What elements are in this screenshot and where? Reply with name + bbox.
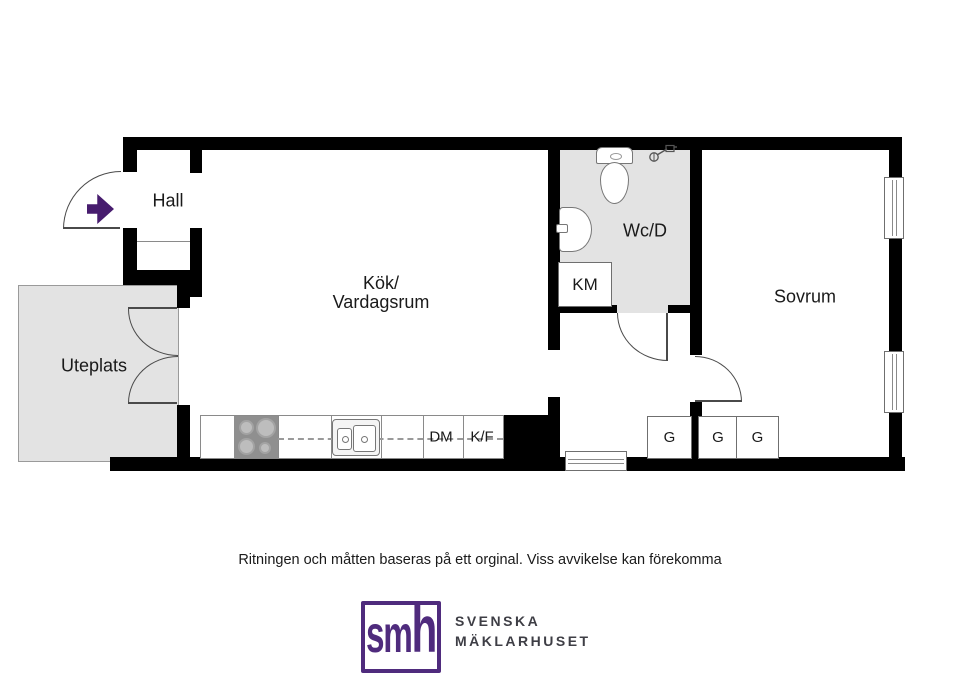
- wardrobe-box: G: [647, 416, 692, 459]
- door-swing-arc: [617, 313, 668, 361]
- smh-logo-sm: sm: [366, 606, 412, 664]
- washing-machine-label: KM: [572, 275, 598, 295]
- wall-kitchen-left-upper: [177, 285, 190, 308]
- room-label-kitchen-line1: Kök/: [333, 274, 430, 293]
- door-leaf: [63, 227, 120, 229]
- door-leaf: [666, 313, 668, 361]
- wall-hall-divider-stub: [190, 137, 202, 173]
- hall-closet-line: [137, 241, 190, 242]
- wall-bathroom-bottom-right: [668, 305, 690, 313]
- kitchen-counter: [200, 415, 504, 459]
- wardrobe-label: G: [712, 429, 724, 446]
- room-label-kitchen: Kök/ Vardagsrum: [333, 274, 430, 312]
- wall-closet-bottom: [123, 270, 202, 285]
- dishwasher-label: DM: [429, 428, 452, 447]
- bathroom-sink-icon: [556, 224, 568, 233]
- washing-machine-box: KM: [558, 262, 612, 307]
- wall-bedroom-left-upper: [690, 137, 702, 355]
- wardrobe-label: G: [752, 429, 764, 446]
- smh-logo-h: h: [412, 592, 437, 666]
- floor-plan-page: G G G KM Hall Kök/ Vardagsrum Uteplats W…: [0, 0, 960, 679]
- wardrobe-label: G: [664, 429, 676, 446]
- window-icon: [884, 351, 904, 413]
- smh-logo-name: SVENSKA MÄKLARHUSET: [455, 611, 591, 651]
- wall-bottom: [110, 457, 905, 471]
- wall-right-segment: [889, 412, 902, 457]
- shower-mixer-icon: [648, 142, 678, 164]
- wall-counter-end: [502, 415, 548, 457]
- wall-top: [123, 137, 902, 150]
- disclaimer-text: Ritningen och måtten baseras på ett orgi…: [0, 552, 960, 568]
- wall-right-segment: [889, 150, 902, 178]
- smh-logo-name-line1: SVENSKA: [455, 611, 591, 631]
- room-label-hall: Hall: [152, 192, 183, 211]
- counter-dash-line: [278, 438, 503, 440]
- window-icon: [884, 177, 904, 239]
- wardrobe-box: G: [698, 416, 738, 459]
- room-label-kitchen-line2: Vardagsrum: [333, 293, 430, 312]
- wall-right-segment: [889, 237, 902, 352]
- door-leaf: [695, 400, 742, 402]
- door-swing-arc: [63, 171, 121, 229]
- wall-mid-lower: [548, 397, 560, 457]
- door-leaf: [128, 402, 177, 404]
- wall-kitchen-left-lower: [177, 405, 190, 457]
- stove-icon: [234, 416, 278, 458]
- kitchen-sink-icon: [332, 419, 380, 456]
- door-swing-arc: [695, 356, 742, 402]
- room-label-patio: Uteplats: [61, 357, 127, 376]
- wardrobe-box: G: [736, 416, 779, 459]
- smh-logo-name-line2: MÄKLARHUSET: [455, 631, 591, 651]
- fridge-freezer-label: K/F: [470, 428, 493, 447]
- window-icon: [565, 451, 627, 471]
- smh-logo-monogram: smh: [366, 599, 436, 678]
- room-label-bathroom: Wc/D: [623, 222, 667, 241]
- room-label-bedroom: Sovrum: [774, 288, 836, 307]
- wall-closet-right: [190, 228, 202, 297]
- wall-hall-left-upper: [123, 137, 137, 172]
